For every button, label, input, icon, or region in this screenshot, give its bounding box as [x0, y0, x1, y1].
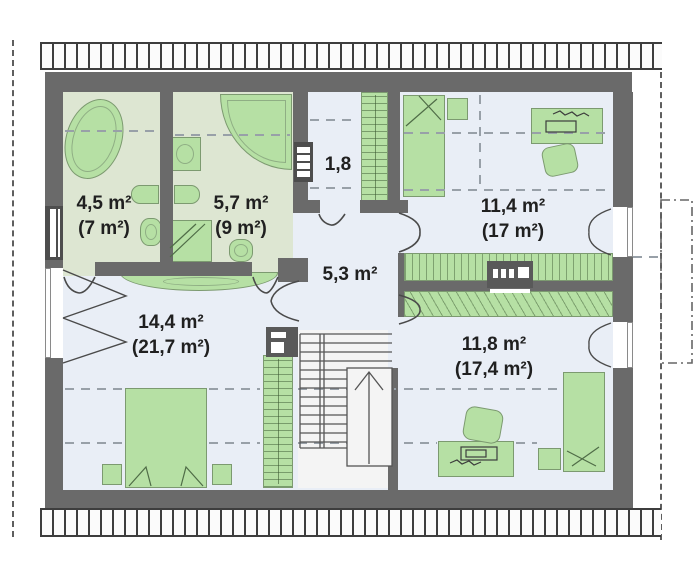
monitor-screen-bottom-desk [466, 450, 486, 457]
room-area-total: (7 m²) [77, 216, 132, 241]
room-label-landing: 1,8 [325, 152, 351, 177]
door-swing-bathroom-large [253, 277, 278, 293]
room-area: 11,4 m² [481, 194, 545, 219]
room-area-total: (9 m²) [214, 216, 269, 241]
room-area-total: (21,7 m²) [132, 335, 210, 360]
room-area: 1,8 [325, 152, 351, 177]
pillow-lines-master-bed [129, 467, 203, 486]
window-swing-right-upper [589, 209, 611, 255]
room-label-bedroom-bottom-right: 11,8 m² (17,4 m²) [455, 332, 533, 382]
door-swing-bedroom-top-right [399, 213, 420, 252]
floor-plan: 4,5 m² (7 m²) 5,7 m² (9 m²) 1,8 11,4 m² … [0, 0, 700, 575]
room-area: 4,5 m² [77, 191, 132, 216]
dormer-outline [661, 200, 692, 363]
room-area-total: (17 m²) [481, 219, 545, 244]
keyboard-top-desk [546, 121, 576, 132]
room-area: 5,3 m² [323, 262, 378, 287]
stairs [300, 334, 392, 466]
room-area: 11,8 m² [455, 332, 533, 357]
room-area: 5,7 m² [214, 191, 269, 216]
linework-overlay [0, 0, 700, 575]
window-swing-right-lower [589, 323, 611, 367]
room-label-bathroom-large: 5,7 m² (9 m²) [214, 191, 269, 241]
room-label-bedroom-master: 14,4 m² (21,7 m²) [132, 310, 210, 360]
room-label-hall: 5,3 m² [323, 262, 378, 287]
room-area-total: (17,4 m²) [455, 357, 533, 382]
room-area: 14,4 m² [132, 310, 210, 335]
keyboard-sketch-bottom-desk [450, 460, 481, 465]
laptop-sketch-top-desk [553, 111, 589, 116]
pillow-lines-bed-top-right [406, 96, 441, 126]
desk-details [450, 111, 589, 465]
window-swing-left [63, 270, 126, 363]
door-swing-bathroom-small [64, 277, 95, 293]
shower-drain-lines [170, 224, 205, 257]
door-swing-bedroom-master [271, 281, 299, 321]
room-label-bathroom-small: 4,5 m² (7 m²) [77, 191, 132, 241]
room-label-bedroom-top-right: 11,4 m² (17 m²) [481, 194, 545, 244]
door-swing-bedroom-bottom-right [399, 295, 420, 324]
door-swing-landing [319, 214, 345, 225]
pillow-lines-bed-bottom-right [567, 447, 599, 466]
